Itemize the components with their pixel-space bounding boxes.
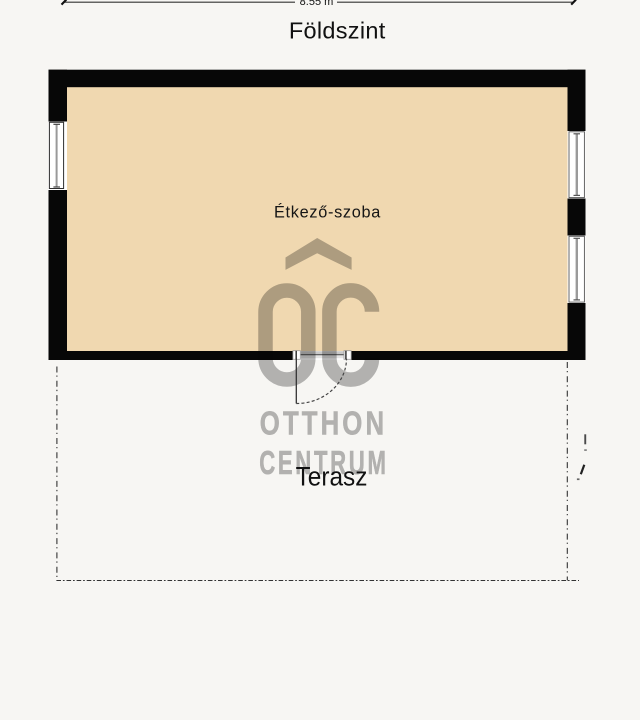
svg-text:8.55 m: 8.55 m [300,0,334,8]
svg-text:Terasz: Terasz [296,462,368,491]
svg-text:OTTHON: OTTHON [260,406,387,443]
svg-text:Földszint: Földszint [289,17,386,43]
svg-text:Étkező-szoba: Étkező-szoba [274,202,381,221]
